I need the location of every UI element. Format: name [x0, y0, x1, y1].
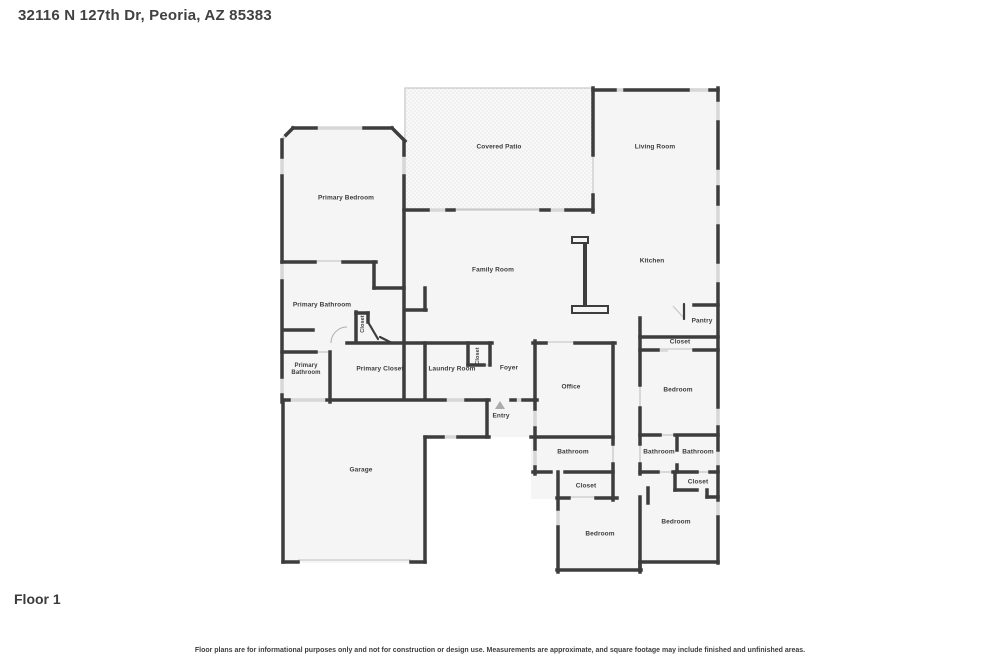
room-label-garage: Garage: [349, 467, 372, 474]
room-label-primary-bedroom: Primary Bedroom: [318, 195, 374, 202]
disclaimer-text: Floor plans are for informational purpos…: [0, 647, 1000, 654]
room-label-covered-patio: Covered Patio: [476, 144, 521, 151]
room-label-bedroom-2: Bedroom: [585, 531, 614, 538]
room-label-kitchen: Kitchen: [640, 258, 665, 265]
room-label-bathroom-1: Bathroom: [557, 449, 589, 456]
room-label-primary-closet: Primary Closet: [356, 366, 403, 373]
floor-label: Floor 1: [14, 591, 61, 607]
room-label-closet-1: Closet: [576, 483, 596, 490]
floor-plan-page: 32116 N 127th Dr, Peoria, AZ 85383: [0, 0, 1000, 666]
room-label-family-room: Family Room: [472, 267, 514, 274]
room-label-foyer: Foyer: [500, 365, 518, 372]
room-label-bathroom-3: Bathroom: [682, 449, 714, 456]
room-label-bathroom-2: Bathroom: [643, 449, 675, 456]
room-label-closet-2: Closet: [688, 479, 708, 486]
room-label-primary-bathroom-2: Primary Bathroom: [283, 363, 329, 377]
room-label-laundry-room: Laundry Room: [428, 366, 475, 373]
room-label-closet-pantry: Closet: [670, 339, 690, 346]
room-label-closet-hall: Closet: [360, 315, 366, 332]
room-label-office: Office: [561, 384, 580, 391]
room-label-bedroom-1: Bedroom: [663, 387, 692, 394]
floor-plan-drawing: [0, 0, 1000, 666]
room-label-pantry: Pantry: [692, 318, 713, 325]
room-label-primary-bathroom: Primary Bathroom: [293, 302, 351, 309]
room-label-living-room: Living Room: [635, 144, 675, 151]
room-label-closet-laundry: Closet: [475, 347, 481, 364]
room-label-bedroom-3: Bedroom: [661, 519, 690, 526]
room-label-entry: Entry: [492, 413, 509, 420]
